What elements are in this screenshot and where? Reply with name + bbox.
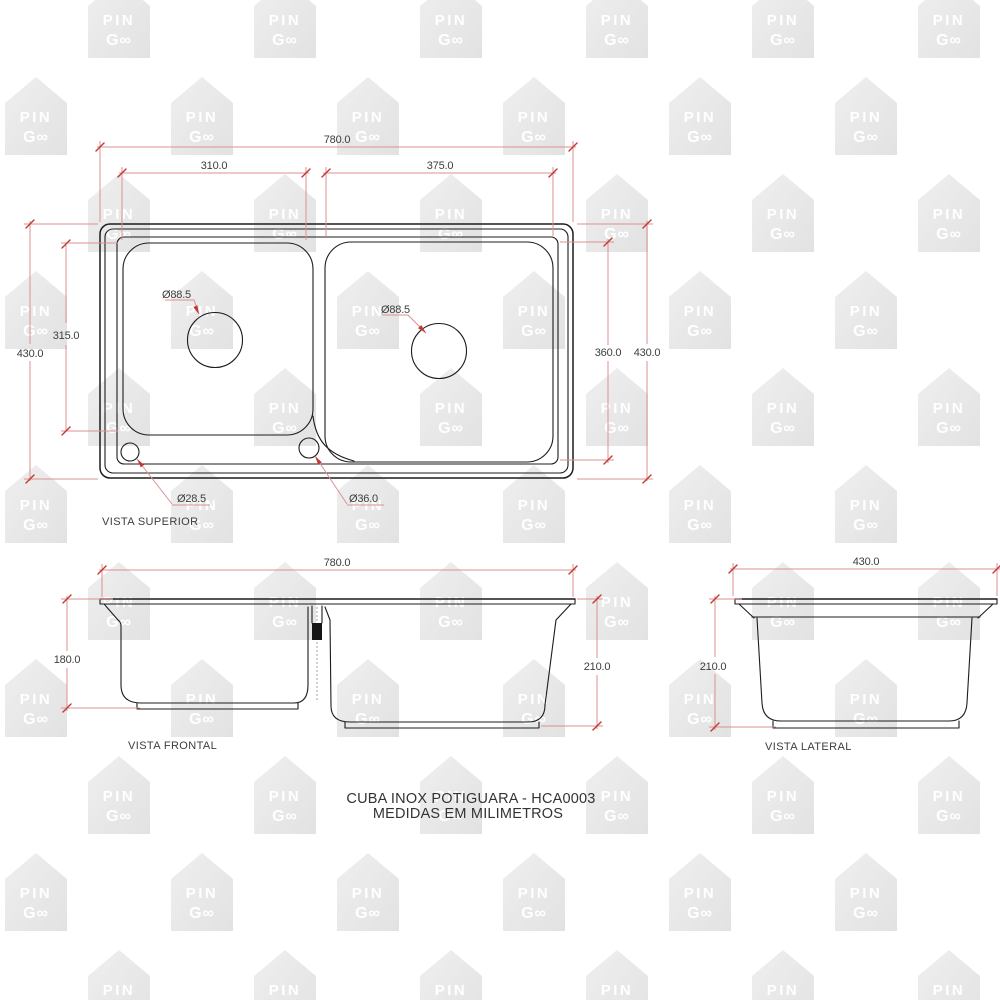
rim-transition-curve <box>313 416 354 461</box>
title-block: CUBA INOX POTIGUARA - HCA0003 MEDIDAS EM… <box>346 791 595 822</box>
top-view-label: VISTA SUPERIOR <box>102 516 198 528</box>
corner-hole <box>121 443 139 461</box>
side-view: 430.0 210.0 VISTA LATERAL <box>700 556 1000 753</box>
side-bowl-body <box>757 618 972 721</box>
dim-corner-hole: Ø28.5 <box>177 493 206 505</box>
dim-front-right-height: 210.0 <box>584 661 611 673</box>
dim-right-bowl-width: 375.0 <box>427 160 454 172</box>
dim-side-height: 210.0 <box>700 661 727 673</box>
side-extension-lines <box>709 563 997 727</box>
drawing-title: CUBA INOX POTIGUARA - HCA0003 <box>346 791 595 807</box>
side-dimension-ticks <box>711 565 1000 731</box>
front-extension-lines <box>61 564 603 726</box>
drawing-subtitle: MEDIDAS EM MILIMETROS <box>373 806 563 822</box>
front-divider-slot <box>312 623 322 640</box>
right-drain-hole <box>412 324 467 379</box>
front-right-bowl-foot <box>345 722 539 728</box>
dim-overall-depth-left: 430.0 <box>17 348 44 360</box>
front-dimension-ticks <box>63 566 601 730</box>
leader-arrow-left-drain <box>193 305 199 314</box>
front-view: 780.0 180.0 210.0 VISTA FRONTAL <box>54 557 611 752</box>
dim-right-bowl-depth: 360.0 <box>595 347 622 359</box>
drawing-layer: 780.0 310.0 375.0 430.0 315.0 360.0 430.… <box>0 0 1000 1000</box>
front-left-bowl-foot <box>137 703 298 709</box>
sink-rim <box>117 237 558 464</box>
sink-outer-edge <box>100 224 573 478</box>
side-dimension-lines <box>715 569 1000 730</box>
dim-side-overall-width: 430.0 <box>853 556 880 568</box>
dim-overall-depth-right: 430.0 <box>634 347 661 359</box>
side-bowl-foot <box>773 721 959 728</box>
front-right-bowl <box>325 604 571 722</box>
top-view-extension-lines <box>24 141 653 479</box>
left-bowl <box>123 243 313 435</box>
top-view: 780.0 310.0 375.0 430.0 315.0 360.0 430.… <box>17 134 661 528</box>
side-flange <box>739 604 993 618</box>
side-view-label: VISTA LATERAL <box>765 741 852 753</box>
front-dimension-lines <box>67 570 597 729</box>
dim-overall-width-top: 780.0 <box>324 134 351 146</box>
front-left-bowl <box>104 604 308 703</box>
dim-left-bowl-width: 310.0 <box>201 160 228 172</box>
blueprint-canvas: PIN G∞ <box>0 0 1000 1000</box>
center-hole <box>299 438 319 458</box>
sink-outer-edge-inner <box>105 229 568 473</box>
leader-arrow-center-hole <box>315 456 322 465</box>
dim-left-bowl-depth: 315.0 <box>53 330 80 342</box>
front-view-label: VISTA FRONTAL <box>128 740 217 752</box>
left-drain-hole <box>188 313 243 368</box>
dim-front-overall-width: 780.0 <box>324 557 351 569</box>
dim-center-hole: Ø36.0 <box>349 493 378 505</box>
top-view-leader-lines <box>137 300 426 505</box>
dim-right-drain: Ø88.5 <box>381 304 410 316</box>
right-bowl <box>325 242 553 462</box>
top-view-dimension-ticks <box>26 143 651 483</box>
dim-left-drain: Ø88.5 <box>162 289 191 301</box>
dim-front-left-height: 180.0 <box>54 654 81 666</box>
